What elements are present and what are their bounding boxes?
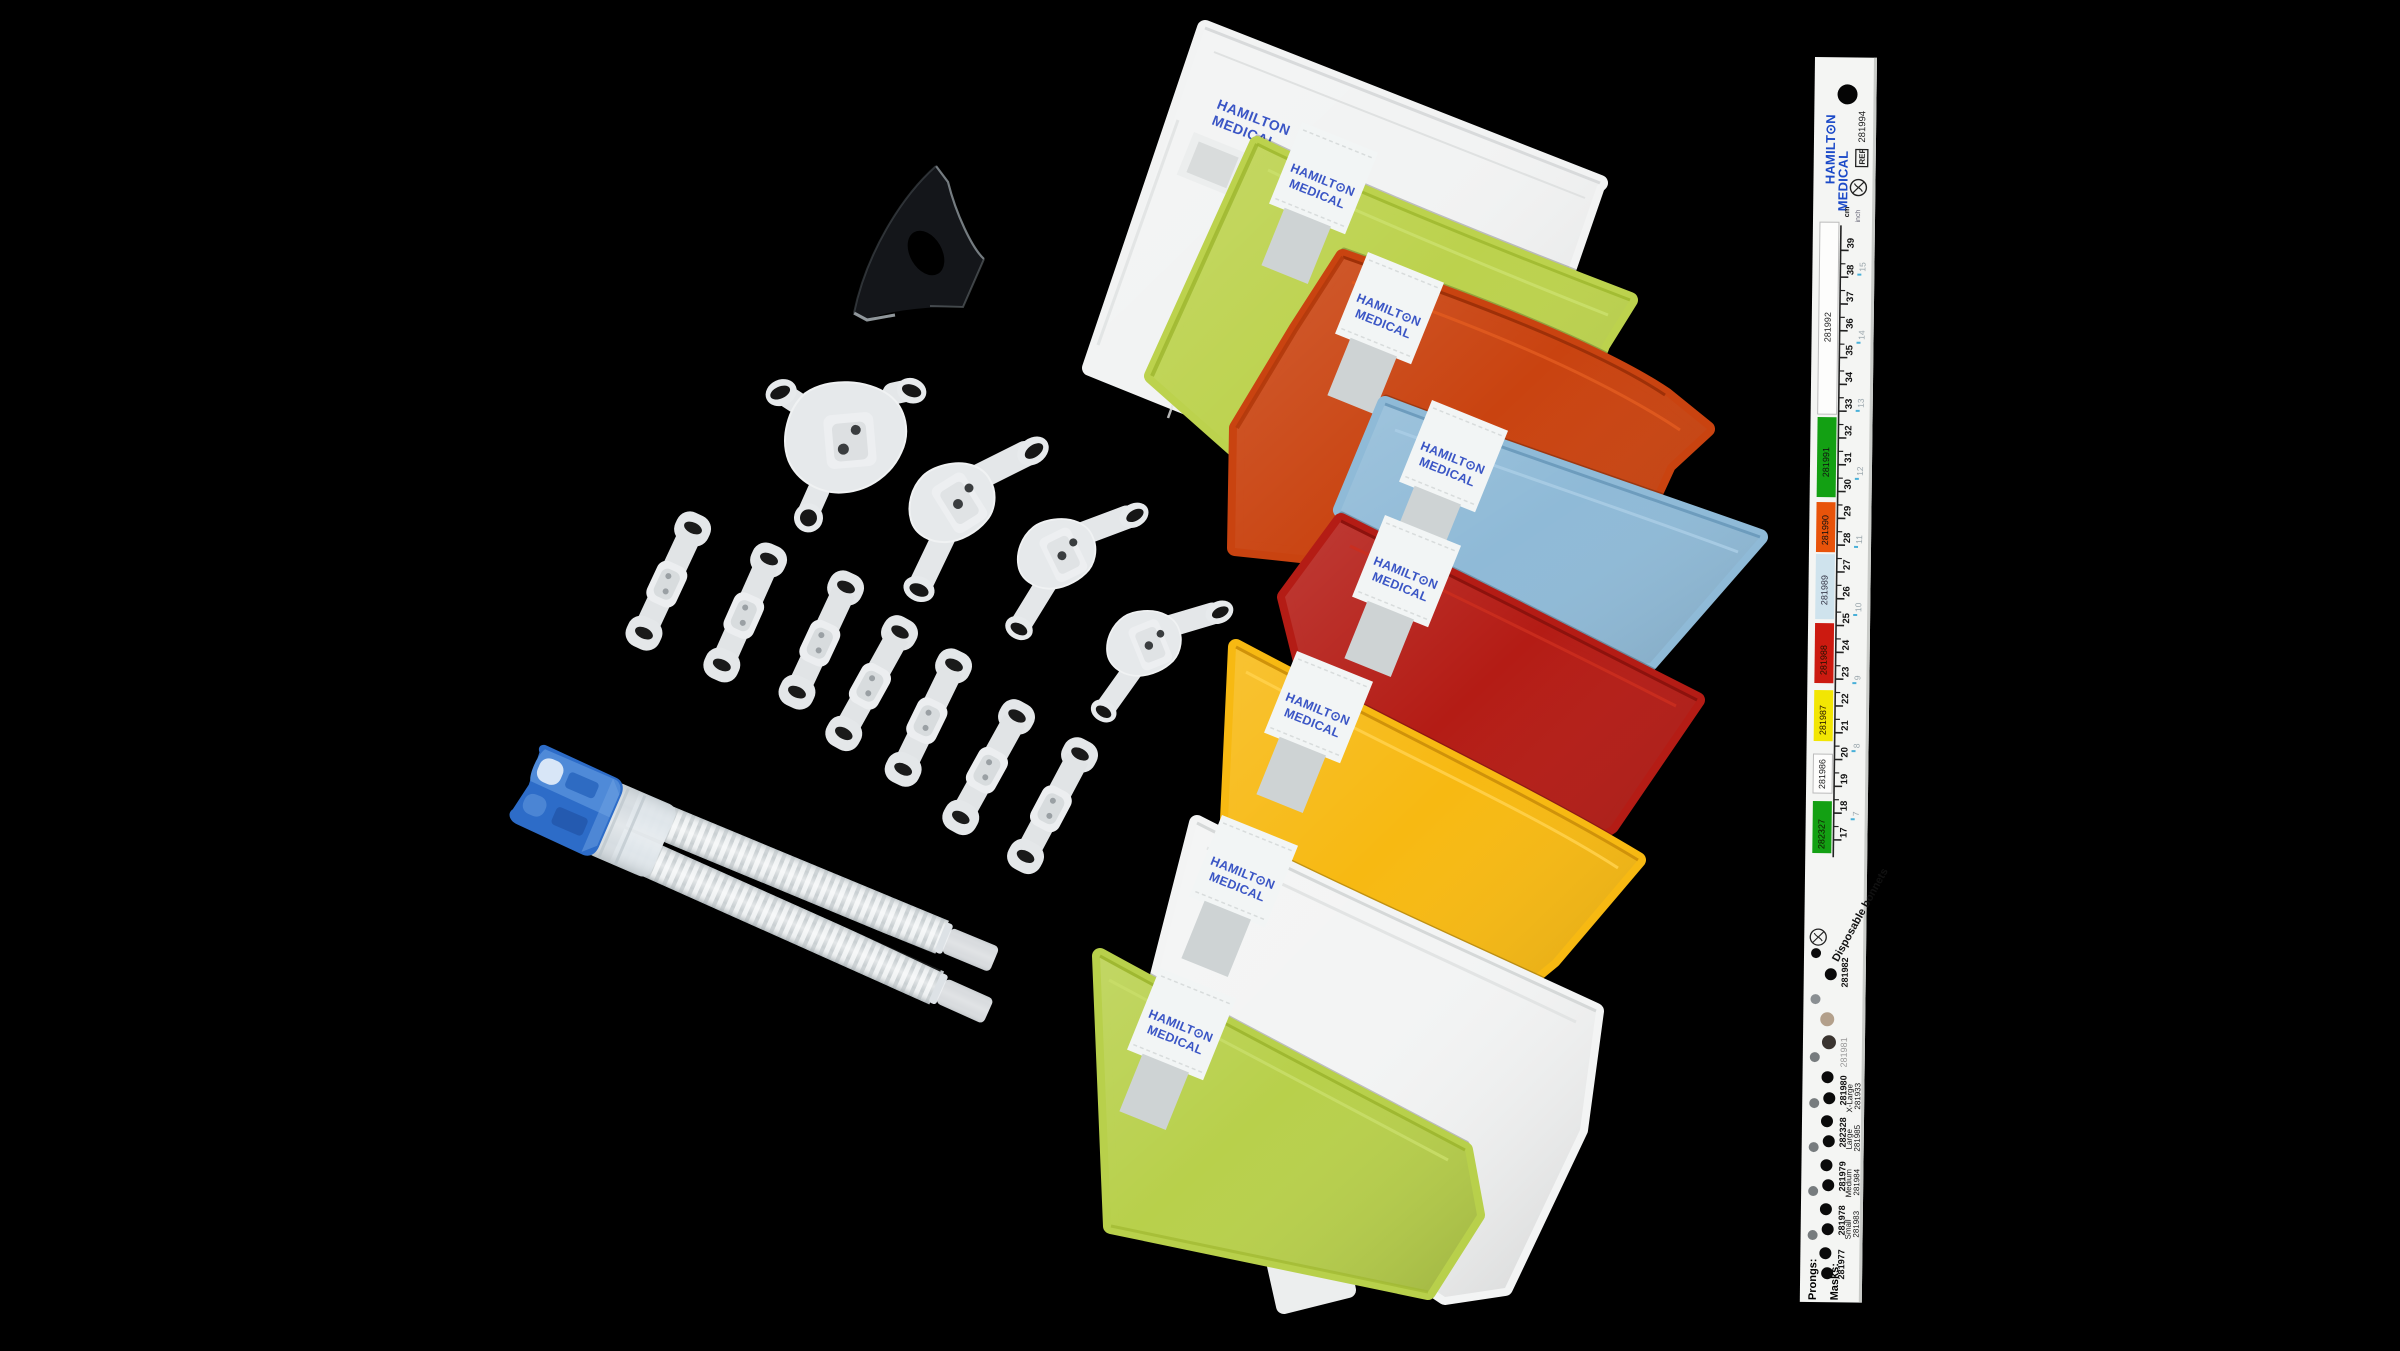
svg-text:15: 15 [1857,262,1867,272]
svg-text:282327: 282327 [1816,819,1826,849]
svg-text:11: 11 [1854,535,1864,544]
svg-text:19: 19 [1839,774,1850,785]
svg-text:281986: 281986 [1817,759,1827,789]
svg-text:17: 17 [1838,827,1849,838]
svg-text:281981: 281981 [1839,1037,1849,1067]
svg-text:9: 9 [1852,675,1862,680]
svg-text:27: 27 [1842,559,1853,570]
svg-text:24: 24 [1841,639,1852,650]
svg-text:32: 32 [1843,425,1854,436]
svg-text:22: 22 [1840,693,1851,704]
svg-text:29: 29 [1842,506,1853,517]
svg-text:36: 36 [1845,318,1856,329]
svg-text:Masks:: Masks: [1829,1263,1841,1300]
svg-text:10: 10 [1853,602,1863,612]
svg-text:14: 14 [1857,330,1867,340]
svg-text:281988: 281988 [1818,645,1828,675]
svg-text:Prongs:: Prongs: [1807,1258,1820,1300]
svg-text:26: 26 [1841,586,1852,597]
svg-text:18: 18 [1839,801,1850,812]
svg-text:REF: REF [1858,148,1867,164]
svg-text:34: 34 [1844,371,1855,382]
svg-text:MEDICAL: MEDICAL [1835,151,1851,212]
svg-text:inch: inch [1855,210,1862,223]
svg-text:38: 38 [1845,265,1856,276]
svg-text:31: 31 [1843,451,1854,462]
svg-text:30: 30 [1843,479,1854,490]
svg-text:39: 39 [1846,238,1857,249]
svg-text:7: 7 [1851,811,1861,816]
svg-text:21: 21 [1840,719,1851,730]
svg-text:281992: 281992 [1823,312,1833,342]
svg-text:281989: 281989 [1819,575,1829,605]
svg-text:281984: 281984 [1852,1168,1861,1195]
svg-text:20: 20 [1839,747,1850,758]
svg-text:8: 8 [1852,743,1862,748]
svg-text:37: 37 [1845,291,1856,302]
svg-text:25: 25 [1841,612,1852,623]
svg-text:12: 12 [1855,466,1865,476]
svg-text:33: 33 [1844,399,1855,410]
svg-text:281994: 281994 [1857,111,1868,143]
svg-text:281990: 281990 [1820,515,1830,545]
svg-text:281982: 281982 [1840,957,1850,987]
svg-text:281991: 281991 [1821,447,1831,477]
svg-text:13: 13 [1856,398,1866,408]
svg-text:281985: 281985 [1853,1124,1862,1151]
svg-text:281983: 281983 [1852,1210,1861,1237]
svg-text:281987: 281987 [1818,705,1828,735]
svg-text:35: 35 [1844,344,1855,355]
svg-text:28: 28 [1842,533,1853,544]
svg-text:281933: 281933 [1853,1082,1862,1109]
svg-text:23: 23 [1840,667,1851,678]
svg-text:cm: cm [1842,206,1851,217]
